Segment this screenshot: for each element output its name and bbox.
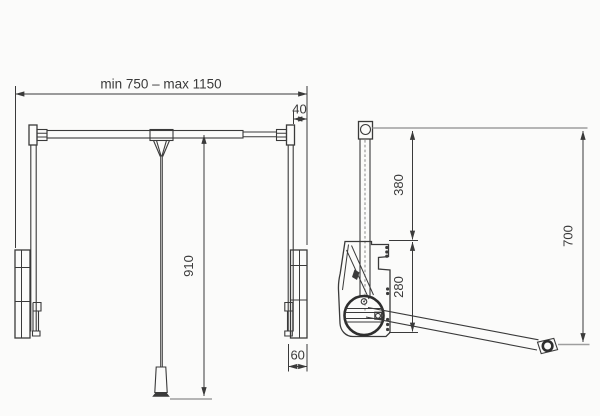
upper-dimension-label: 380 [391, 174, 406, 196]
swing-arm [366, 308, 558, 354]
width-dimension-label: min 750 – max 1150 [100, 77, 221, 92]
pull-cord [161, 157, 163, 368]
drum-chord-lines [345, 309, 383, 323]
pull-handle [152, 367, 170, 397]
front-view: min 750 – max 1150 40 [15, 77, 307, 400]
hub-bolt-center [363, 301, 365, 303]
right-connector-detail [277, 133, 287, 137]
center-cord-block [150, 130, 173, 141]
depth-dimension-60: 60 [289, 344, 308, 372]
drop-dimension-910: 910 [170, 135, 212, 399]
offset-dimension-label: 40 [292, 102, 306, 117]
right-rail-connector [277, 130, 287, 141]
width-dimension: min 750 – max 1150 [16, 77, 308, 249]
overall-dimension-700: 700 [558, 131, 590, 345]
left-end-cap [29, 125, 37, 145]
extension-lines [16, 86, 308, 248]
drop-dimension-label: 910 [181, 255, 196, 277]
bracket-plate [15, 250, 30, 338]
left-connector-detail [37, 133, 47, 137]
lower-dimension-280: 280 [389, 242, 418, 333]
lower-dimension-label: 280 [391, 276, 406, 298]
overall-dimension-label: 700 [561, 225, 576, 247]
mounting-holes [385, 246, 389, 331]
right-end-cap [287, 125, 295, 145]
bracket-clip [285, 303, 293, 337]
top-fitting [359, 122, 373, 140]
fitting-hole [361, 125, 371, 135]
rail-outer-tube [47, 131, 243, 139]
technical-drawing-canvas: min 750 – max 1150 40 [0, 0, 600, 416]
wardrobe-lift-drawing: min 750 – max 1150 40 [0, 0, 600, 416]
lift-mechanism [338, 242, 390, 337]
brace-block [352, 270, 360, 281]
handle-body [155, 367, 167, 393]
cord-funnel [154, 141, 170, 157]
hanging-rail [29, 125, 295, 157]
upper-dimension-380: 380 [389, 131, 418, 241]
offset-dimension-40: 40 [292, 102, 307, 125]
rail-inner-tube [243, 132, 277, 137]
depth-dimension-label: 60 [290, 348, 304, 363]
bracket-plate-lines [15, 250, 30, 338]
left-rail-connector [37, 130, 47, 141]
side-view: 380 280 700 [338, 122, 589, 354]
grip-ring [543, 341, 553, 351]
arm-tube [366, 308, 539, 351]
pivot-hole [376, 313, 381, 318]
left-wall-bracket [15, 250, 41, 338]
